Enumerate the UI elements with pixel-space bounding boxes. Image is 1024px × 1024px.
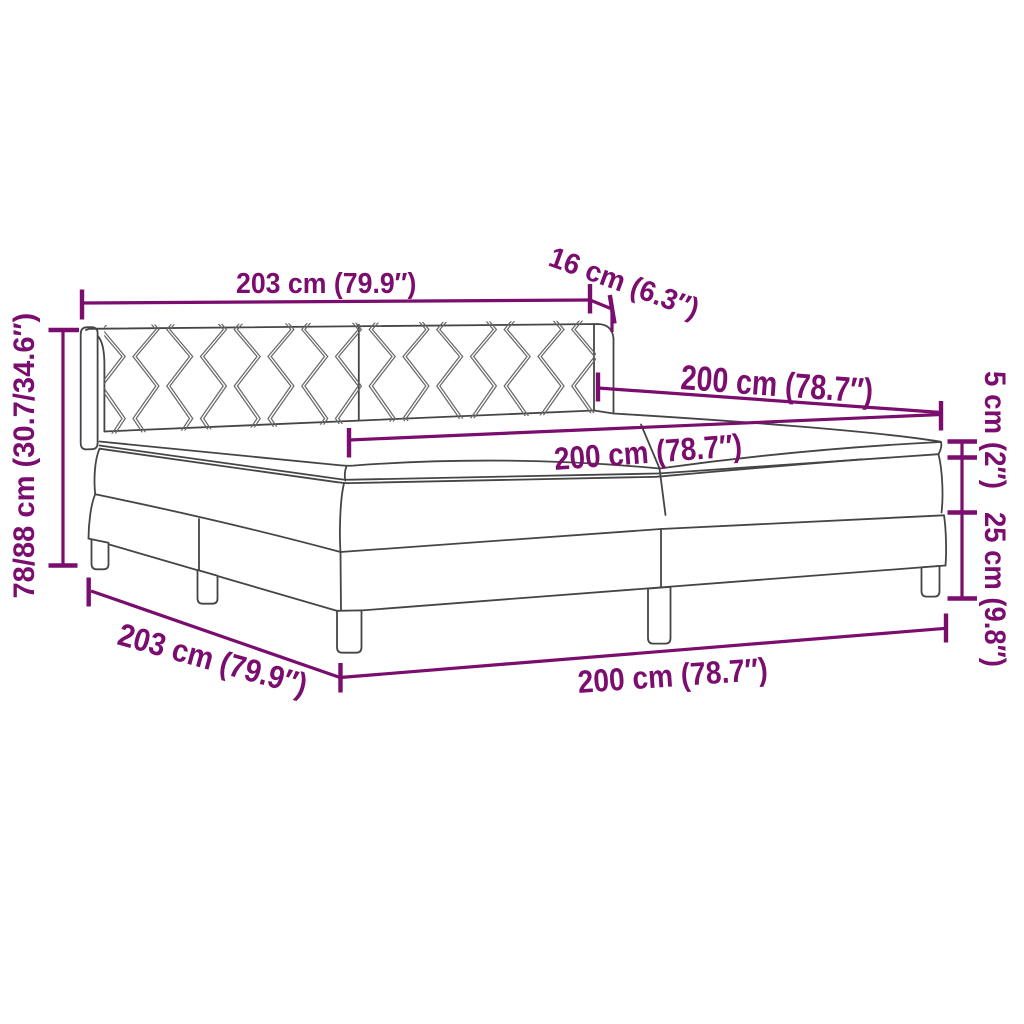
svg-text:200 cm (78.7″): 200 cm (78.7″): [577, 652, 769, 700]
svg-text:203 cm (79.9″): 203 cm (79.9″): [236, 267, 416, 299]
svg-text:16 cm (6.3″): 16 cm (6.3″): [545, 241, 704, 325]
svg-text:78/88 cm (30.7/34.6″): 78/88 cm (30.7/34.6″): [8, 313, 41, 599]
svg-text:25 cm (9.8″): 25 cm (9.8″): [978, 512, 1011, 667]
svg-text:200 cm (78.7″): 200 cm (78.7″): [679, 357, 874, 410]
svg-text:5 cm (2″): 5 cm (2″): [978, 371, 1011, 489]
svg-text:203 cm (79.9″): 203 cm (79.9″): [114, 617, 311, 703]
